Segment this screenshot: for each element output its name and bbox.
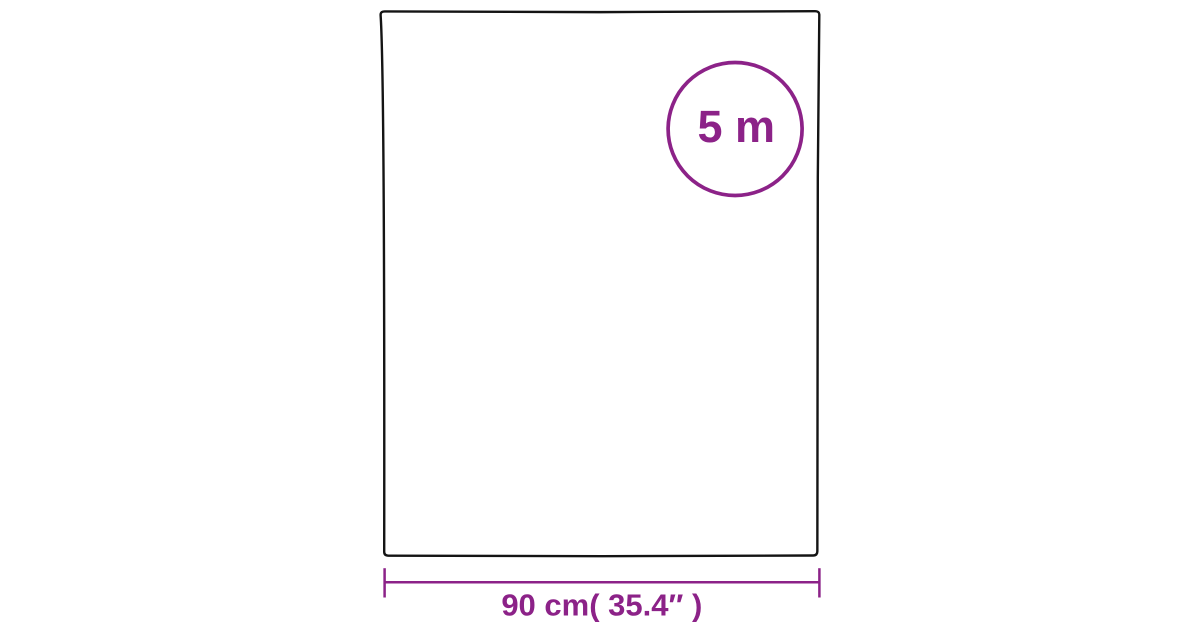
- svg-text:90 cm( 35.4″ ): 90 cm( 35.4″ ): [501, 588, 702, 623]
- svg-text:5 m: 5 m: [698, 101, 776, 152]
